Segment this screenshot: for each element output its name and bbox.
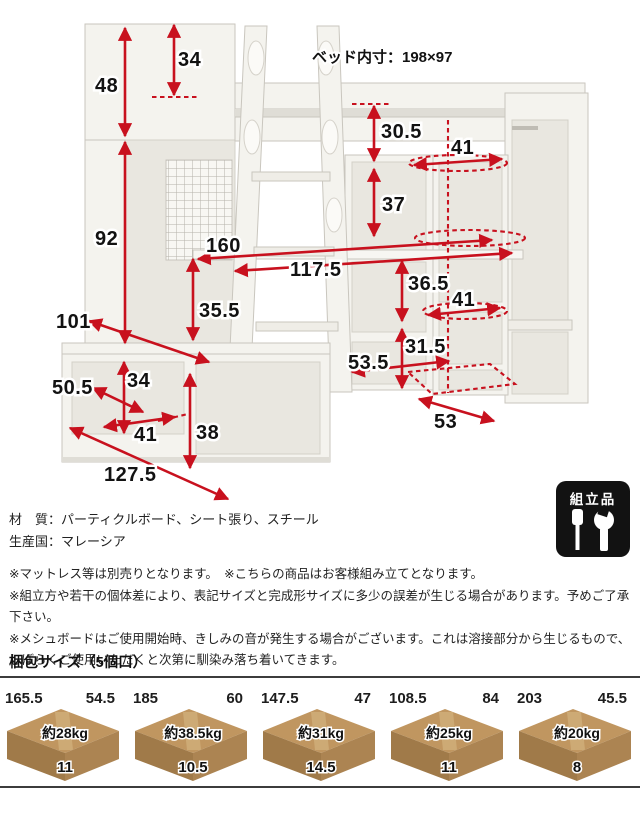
packing-boxes-row: 165.5 54.5 約28kg 11 185 60 約38.5kg 10.5 …: [0, 688, 640, 784]
dim-label-117-5: 117.5: [290, 259, 341, 281]
dim-label-160: 160: [206, 235, 241, 257]
dim-label-101: 101: [56, 311, 91, 333]
package-box-1: 165.5 54.5 約28kg 11: [0, 688, 128, 784]
package-height: 8: [573, 759, 581, 776]
dim-label-50-5: 50.5: [52, 377, 93, 399]
note-line: ※組立方や若干の個体差により、表記サイズと完成形サイズに多少の誤差が生じる場合が…: [9, 586, 640, 629]
cardboard-box-icon: 約38.5kg 10.5: [131, 701, 253, 781]
dim-label-41-mid: 41: [452, 289, 475, 311]
assembly-required-badge: 組立品: [556, 481, 630, 557]
dim-label-92: 92: [95, 228, 118, 250]
dim-label-30-5: 30.5: [381, 121, 422, 143]
dim-label-127-5: 127.5: [104, 464, 157, 486]
wardrobe-cubby: [512, 332, 568, 394]
dim-label-41-btm: 41: [134, 424, 157, 446]
ladder-tread: [256, 322, 338, 331]
package-box-4: 108.5 84 約25kg 11: [384, 688, 512, 784]
ladder-hole: [326, 198, 342, 232]
tools-icon: [561, 508, 625, 554]
ladder-tread: [252, 172, 330, 181]
dim-label-41-top: 41: [451, 137, 474, 159]
cardboard-box-icon: 約28kg 11: [3, 701, 125, 781]
cabinet-top: [62, 343, 330, 354]
wrench-handle: [600, 528, 608, 551]
package-weight: 約25kg: [426, 725, 472, 741]
ladder-hole: [322, 120, 338, 154]
package-weight: 約20kg: [554, 725, 600, 741]
dim-label-34-btm: 34: [127, 370, 151, 392]
packing-size-title: 梱包サイズ（5個口）: [9, 651, 147, 672]
divider-line: [0, 676, 640, 678]
package-height: 14.5: [306, 759, 335, 776]
wardrobe-opening: [512, 120, 568, 320]
note-line: ※メシュボードはご使用開始時、きしみの音が発生する場合がございます。これは溶接部…: [9, 629, 640, 651]
package-box-2: 185 60 約38.5kg 10.5: [128, 688, 256, 784]
product-spec-page: { "diagram": { "bed_inner_label": "ベッド内寸…: [0, 0, 640, 813]
ladder-hole: [244, 120, 260, 154]
dim-label-36-5: 36.5: [408, 273, 449, 295]
bed-inner-size-label: ベッド内寸：198×97: [312, 48, 452, 66]
ladder-hole: [248, 41, 264, 75]
package-box-5: 203 45.5 約20kg 8: [512, 688, 640, 784]
material-line: 材 質：パーティクルボード、シート張り、スチール: [9, 509, 319, 531]
package-weight: 約31kg: [298, 725, 344, 741]
cardboard-box-icon: 約25kg 11: [387, 701, 509, 781]
wardrobe-shelf: [508, 320, 572, 330]
dim-label-48: 48: [95, 75, 118, 97]
cabinet-base: [62, 457, 330, 462]
cardboard-box-icon: 約31kg 14.5: [259, 701, 381, 781]
screwdriver-shaft: [576, 525, 580, 550]
package-height: 10.5: [178, 759, 207, 776]
dim-label-31-5: 31.5: [405, 336, 446, 358]
product-info: 材 質：パーティクルボード、シート張り、スチール 生産国：マレーシア: [9, 509, 319, 553]
divider-line: [0, 786, 640, 788]
dim-label-38: 38: [196, 422, 219, 444]
package-box-3: 147.5 47 約31kg 14.5: [256, 688, 384, 784]
dim-label-53: 53: [434, 411, 457, 433]
loft-bed-dimension-diagram: ベッド内寸：198×97 48 34 92 30.5 41 37 160 117…: [0, 0, 640, 505]
dim-label-34-top: 34: [178, 49, 202, 71]
cardboard-box-icon: 約20kg 8: [515, 701, 637, 781]
package-weight: 約38.5kg: [164, 725, 222, 741]
package-height: 11: [57, 759, 73, 776]
package-height: 11: [441, 759, 457, 776]
screwdriver-icon: [572, 509, 583, 525]
dim-label-53-5: 53.5: [348, 352, 389, 374]
assembly-badge-label: 組立品: [556, 488, 630, 508]
origin-line: 生産国：マレーシア: [9, 531, 319, 553]
dim-label-37: 37: [382, 194, 405, 216]
note-line: ※マットレス等は別売りとなります。 ※こちらの商品はお客様組み立てとなります。: [9, 564, 640, 586]
package-weight: 約28kg: [42, 725, 88, 741]
dim-label-35-5: 35.5: [199, 300, 240, 322]
